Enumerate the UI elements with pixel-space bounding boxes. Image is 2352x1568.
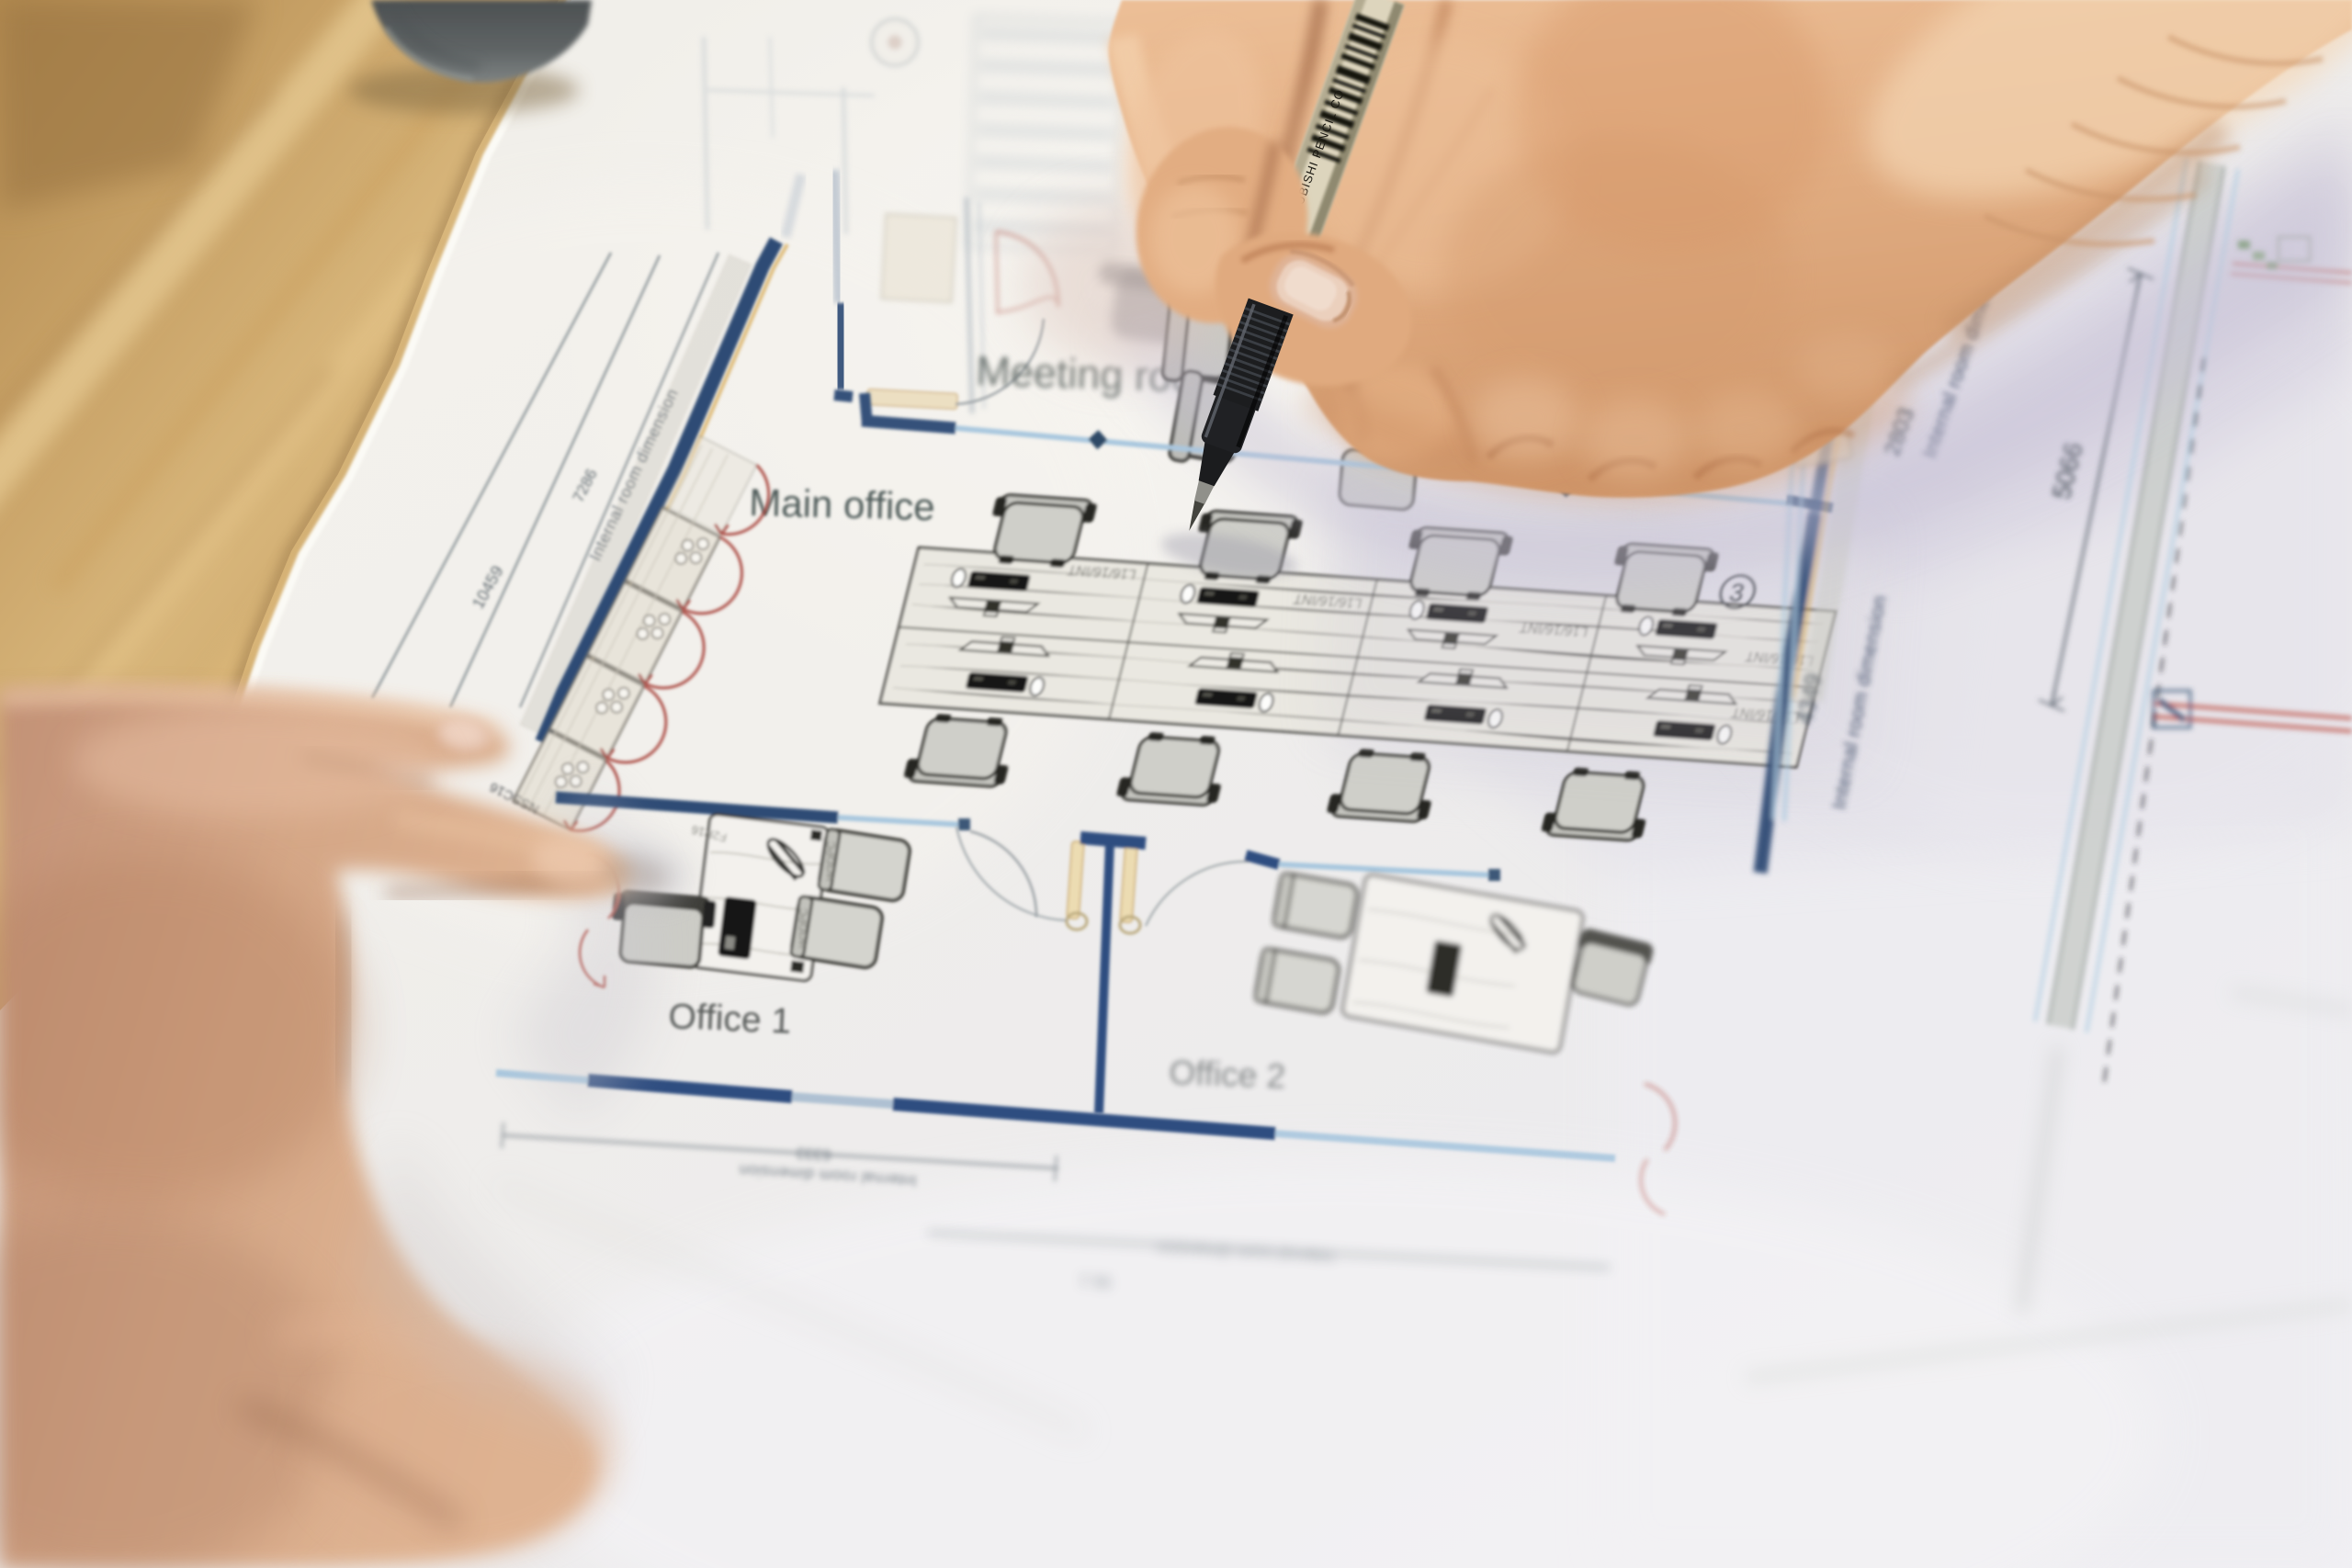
svg-text:Main office: Main office xyxy=(749,480,936,528)
svg-text:96.1: 96.1 xyxy=(1079,1271,1112,1292)
svg-text:Office 1: Office 1 xyxy=(668,997,792,1042)
svg-text:W3DPC: W3DPC xyxy=(797,908,810,948)
svg-text:W3DPC: W3DPC xyxy=(824,840,838,881)
svg-text:6333: 6333 xyxy=(796,1145,831,1164)
svg-text:Office 2: Office 2 xyxy=(1169,1054,1286,1095)
